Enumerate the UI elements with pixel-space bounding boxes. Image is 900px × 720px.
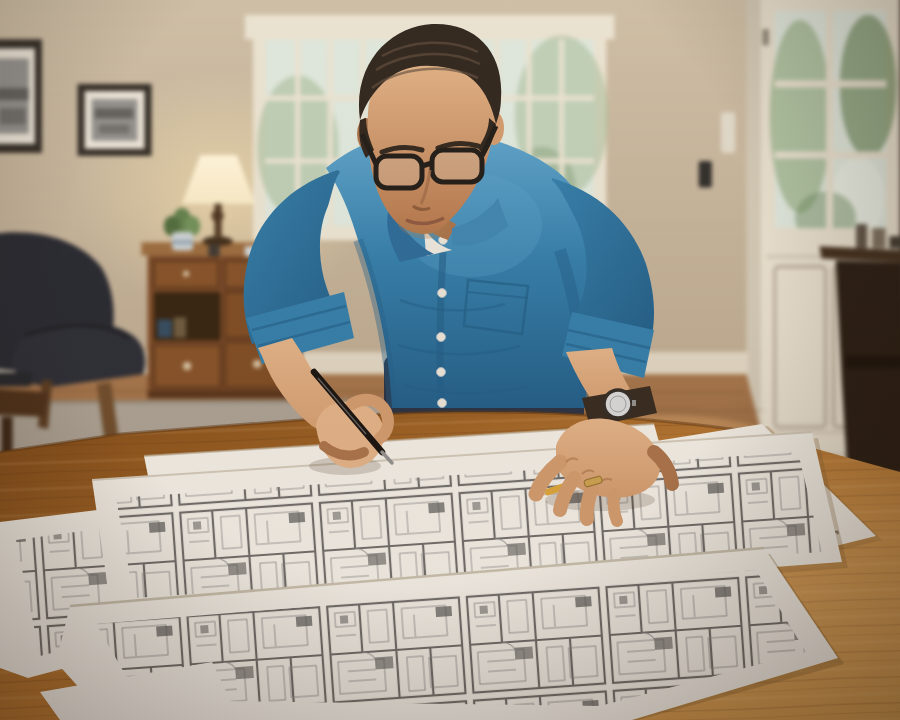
- finger: [587, 488, 592, 519]
- hands-foreground: [0, 0, 900, 720]
- photo-scene: [0, 0, 900, 720]
- watch-crown: [632, 400, 636, 406]
- pen-tip: [382, 452, 392, 463]
- left-forearm-hand: [258, 338, 392, 468]
- watch-face: [604, 390, 632, 418]
- finger: [614, 494, 617, 521]
